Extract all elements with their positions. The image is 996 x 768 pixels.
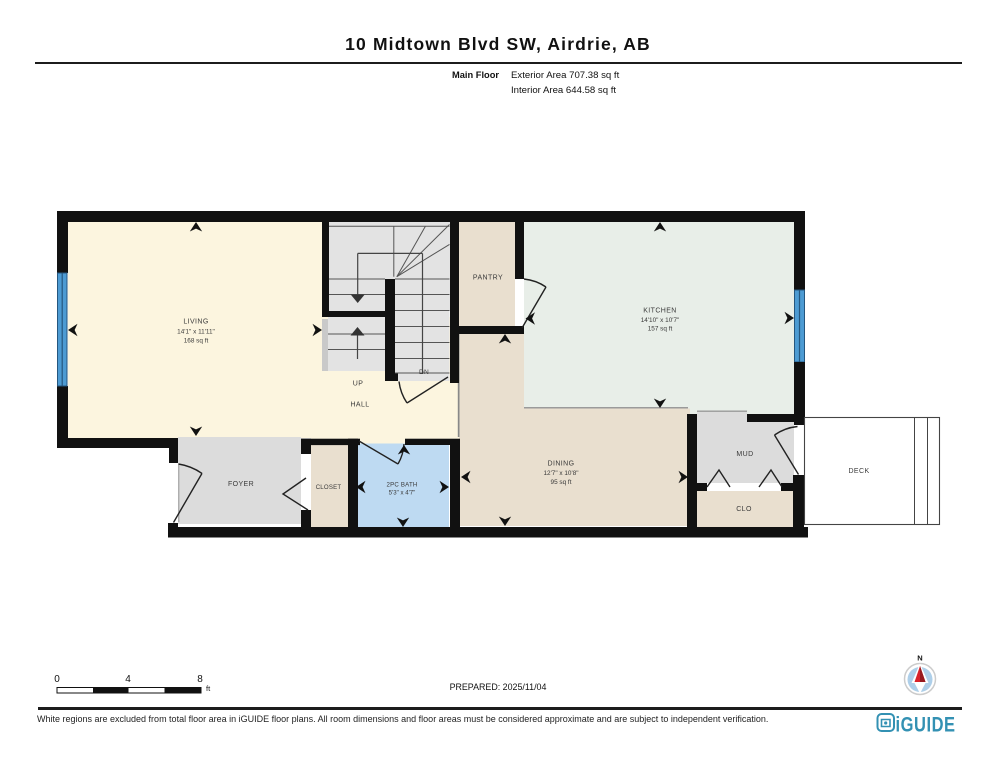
svg-text:MUD: MUD	[736, 451, 753, 458]
svg-text:HALL: HALL	[350, 402, 369, 409]
svg-text:168 sq ft: 168 sq ft	[184, 338, 209, 345]
svg-text:FOYER: FOYER	[228, 481, 254, 488]
svg-text:DINING: DINING	[548, 461, 575, 468]
svg-text:157 sq ft: 157 sq ft	[648, 326, 673, 333]
svg-text:N: N	[917, 654, 922, 663]
svg-text:CLO: CLO	[736, 506, 752, 513]
svg-text:95 sq ft: 95 sq ft	[551, 479, 572, 486]
svg-text:DN: DN	[419, 369, 429, 376]
svg-text:5'3" x 4'7": 5'3" x 4'7"	[389, 490, 416, 497]
svg-text:LIVING: LIVING	[183, 319, 208, 326]
svg-text:2PC BATH: 2PC BATH	[387, 482, 418, 489]
svg-text:14'1" x 11'11": 14'1" x 11'11"	[177, 329, 215, 336]
svg-text:iGUIDE: iGUIDE	[896, 713, 956, 736]
svg-text:14'10" x 10'7": 14'10" x 10'7"	[641, 317, 680, 324]
svg-text:CLOSET: CLOSET	[316, 484, 342, 491]
svg-text:PANTRY: PANTRY	[473, 275, 503, 282]
svg-text:DECK: DECK	[848, 468, 869, 475]
svg-text:12'7" x 10'8": 12'7" x 10'8"	[543, 470, 578, 477]
svg-text:KITCHEN: KITCHEN	[643, 308, 677, 315]
svg-text:UP: UP	[353, 381, 364, 388]
